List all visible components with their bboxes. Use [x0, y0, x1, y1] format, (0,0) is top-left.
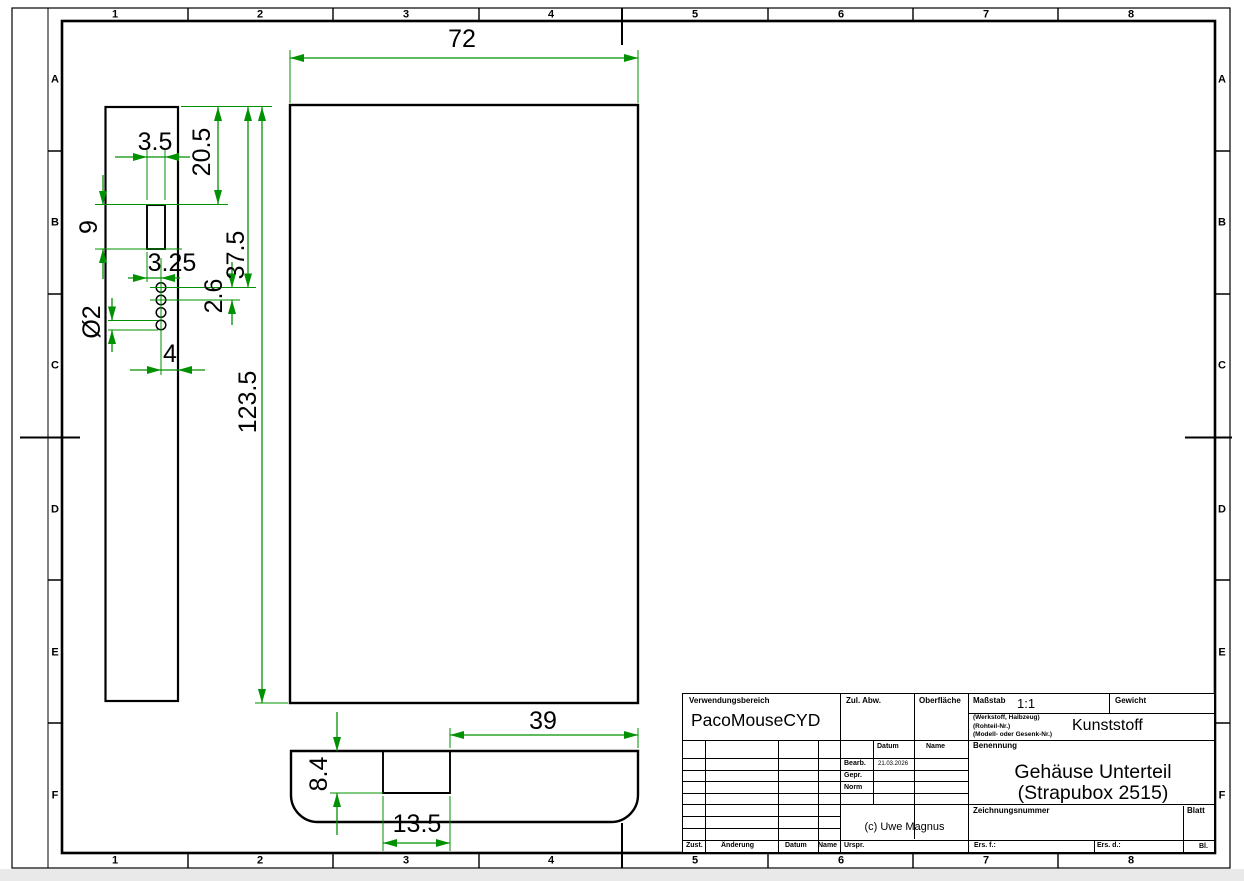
werkstoff-label-2: (Rohteil-Nr.): [973, 723, 1010, 731]
datum-col-label: Datum: [877, 743, 899, 751]
grid-col-label-bottom: 5: [692, 855, 698, 866]
ers-d-label: Ers. d.:: [1097, 842, 1121, 850]
grid-col-label-bottom: 8: [1128, 855, 1134, 866]
grid-row-label-right: B: [1218, 218, 1226, 229]
dim-bottom-slot-label: 13.5: [393, 810, 442, 838]
part-title: Gehäuse Unterteil (Strapubox 2515): [983, 762, 1203, 803]
dim-hole-spacing-label: 2.6: [200, 279, 228, 314]
zust-label: Zust.: [686, 842, 703, 850]
part-title-line2: (Strapubox 2515): [983, 783, 1203, 804]
werkstoff-label-1: (Werkstoff, Halbzeug): [973, 714, 1040, 722]
massstab-label: Maßstab: [973, 697, 1005, 706]
part-views: [106, 105, 639, 822]
dim-hole-offset-label: 3.25: [148, 249, 197, 277]
drawing-sheet: 72 39 13.5 3.5 3.25 4 20.5 37.5 123.5 9 …: [0, 0, 1244, 881]
grid-row-label-left: F: [52, 791, 59, 802]
dim-slot-height-label: 9: [75, 220, 103, 234]
oberflaeche-label: Oberfläche: [919, 697, 961, 706]
grid-row-label-right: F: [1219, 791, 1226, 802]
copyright-text: (c) Uwe Magnus: [841, 821, 968, 833]
dim-bottom-width-label: 39: [529, 707, 557, 735]
zeichnungsnummer-label: Zeichnungsnummer: [973, 807, 1049, 816]
dim-hole-edge-label: 4: [163, 340, 177, 368]
werkstoff-label-3: (Modell- oder Gesenk-Nr.): [973, 731, 1052, 739]
grid-col-label-top: 6: [838, 9, 844, 20]
grid-col-label-top: 5: [692, 9, 698, 20]
grid-row-label-left: D: [51, 505, 59, 516]
grid-row-label-right: A: [1218, 75, 1226, 86]
grid-row-label-right: E: [1218, 648, 1225, 659]
side-view-slot: [147, 205, 165, 249]
urspr-label: Urspr.: [844, 842, 864, 850]
grid-row-label-left: E: [51, 648, 58, 659]
part-title-line1: Gehäuse Unterteil: [983, 762, 1203, 783]
grid-col-label-bottom: 2: [257, 855, 263, 866]
dim-bottom-height-label: 8.4: [305, 757, 333, 792]
bottom-view-slot: [383, 751, 450, 793]
zul-abw-label: Zul. Abw.: [846, 697, 881, 706]
gepr-label: Gepr.: [844, 772, 862, 780]
dim-hole-diameter-label: Ø2: [78, 305, 106, 338]
grid-col-label-top: 2: [257, 9, 263, 20]
aenderung-label: Änderung: [721, 842, 754, 850]
side-view-outline: [106, 107, 179, 701]
dimension-arrows: [99, 54, 638, 847]
grid-col-label-bottom: 1: [112, 855, 118, 866]
grid-col-label-bottom: 6: [838, 855, 844, 866]
grid-col-label-bottom: 3: [403, 855, 409, 866]
dim-total-height-label: 123.5: [234, 371, 262, 434]
grid-col-label-bottom: 4: [548, 855, 554, 866]
grid-col-label-top: 8: [1128, 9, 1134, 20]
dim-width-label: 72: [448, 25, 476, 53]
grid-row-label-left: B: [51, 218, 59, 229]
blatt-label: Blatt: [1187, 807, 1205, 816]
bearb-label: Bearb.: [844, 760, 866, 768]
massstab-value: 1:1: [1017, 696, 1035, 711]
grid-col-label-top: 7: [983, 9, 989, 20]
grid-col-label-top: 3: [403, 9, 409, 20]
datum-rev-label: Datum: [785, 842, 807, 850]
dimension-lines: [103, 58, 638, 843]
name-col-label: Name: [926, 743, 945, 751]
verwendungsbereich-value: PacoMouseCYD: [691, 710, 820, 731]
grid-row-label-left: A: [51, 75, 59, 86]
grid-row-label-right: C: [1218, 361, 1226, 372]
grid-col-label-top: 1: [112, 9, 118, 20]
ers-f-label: Ers. f.:: [974, 842, 996, 850]
werkstoff-value: Kunststoff: [1072, 717, 1143, 735]
dim-slot-top-label: 20.5: [188, 128, 216, 177]
gewicht-label: Gewicht: [1115, 697, 1146, 706]
name-rev-label: Name: [818, 842, 837, 850]
grid-row-label-left: C: [51, 361, 59, 372]
window-bottom-strip: [0, 869, 1244, 881]
dim-slot-width-label: 3.5: [138, 128, 173, 156]
bottom-view-outline: [291, 751, 638, 822]
norm-label: Norm: [844, 784, 862, 792]
front-view-outline: [290, 105, 638, 703]
verwendungsbereich-label: Verwendungsbereich: [689, 697, 769, 706]
dimension-labels: 72 39 13.5 3.5 3.25 4 20.5 37.5 123.5 9 …: [75, 25, 557, 838]
grid-col-label-bottom: 7: [983, 855, 989, 866]
bearb-date: 21.03.2026: [878, 761, 908, 767]
title-block: Verwendungsbereich PacoMouseCYD Zul. Abw…: [682, 693, 1215, 853]
benennung-label: Benennung: [973, 742, 1017, 751]
dim-holes-top-label: 37.5: [222, 231, 250, 280]
grid-col-label-top: 4: [548, 9, 554, 20]
bl-label: Bl.: [1199, 843, 1208, 851]
grid-row-label-right: D: [1218, 505, 1226, 516]
